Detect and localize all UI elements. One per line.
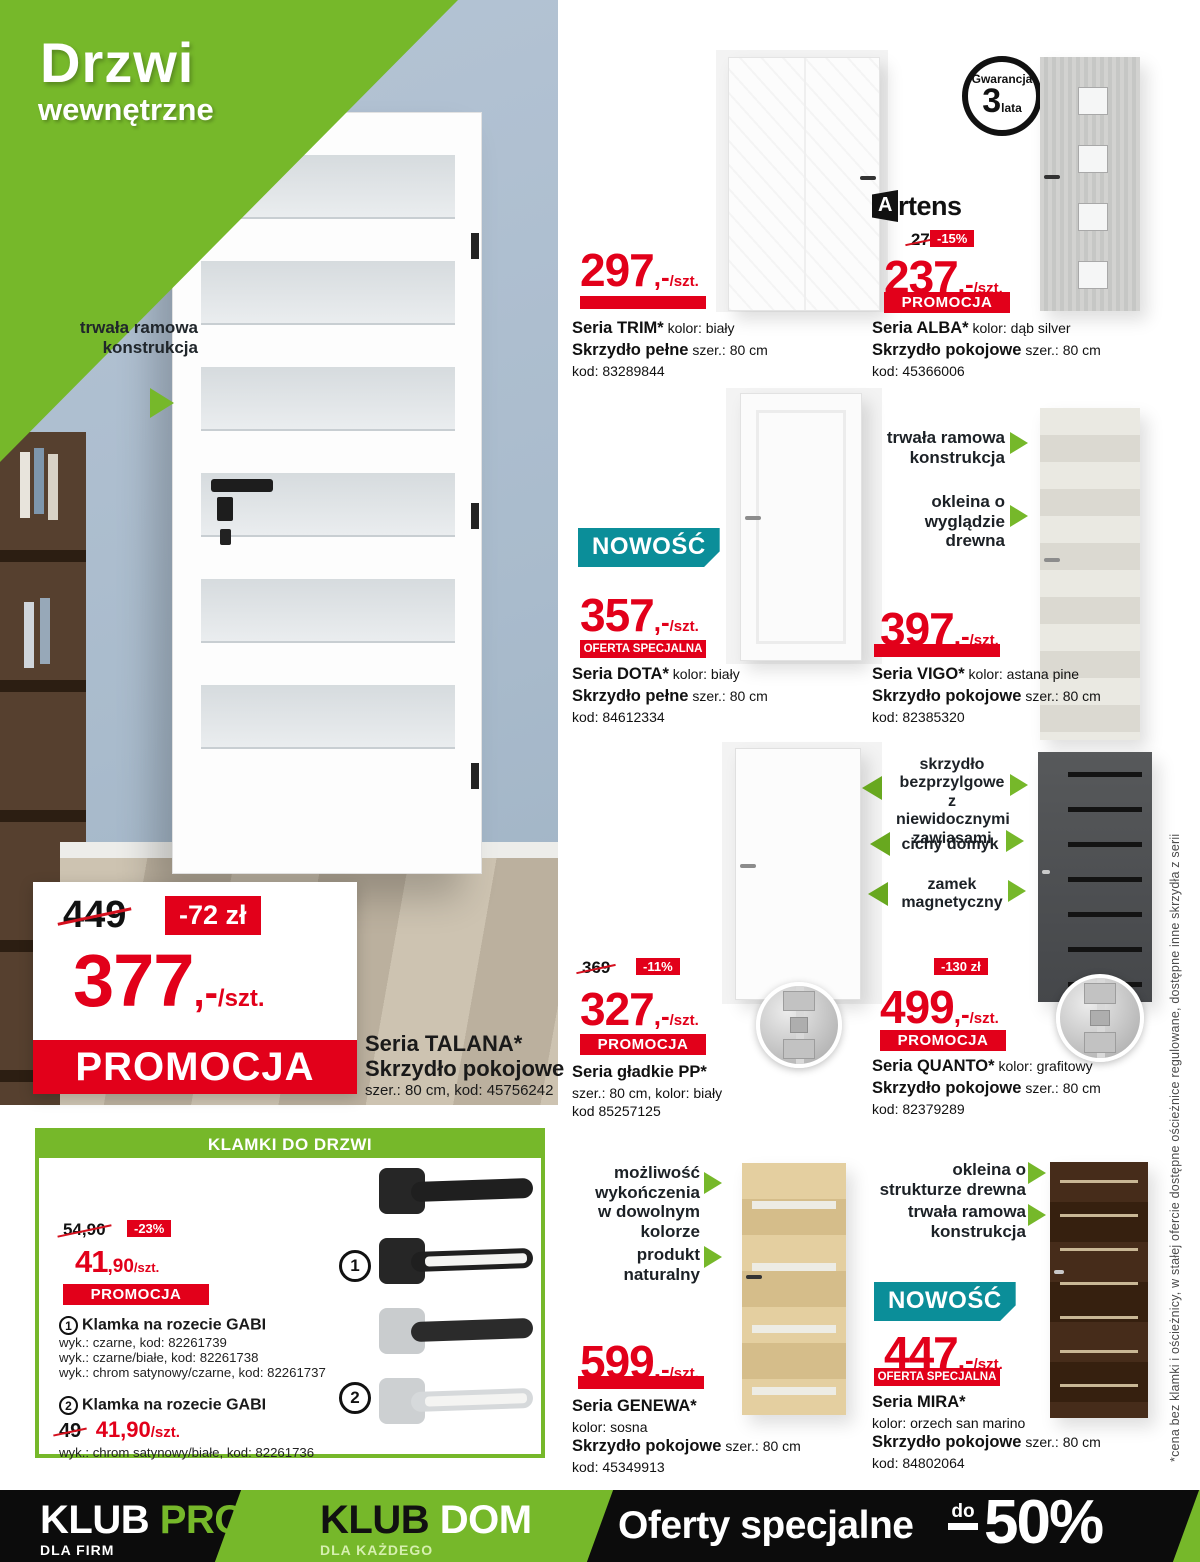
handle-inlay: [425, 1393, 527, 1407]
page-subtitle: wewnętrzne: [38, 92, 214, 128]
hinge-detail-inset: [1056, 974, 1144, 1062]
hinge-icon: [471, 763, 479, 789]
artens-mark-icon: A: [872, 190, 898, 222]
price-underline: [874, 644, 1000, 657]
book-spine: [34, 448, 44, 514]
book-spine: [20, 452, 30, 518]
product-info-dota: Seria DOTA* kolor: biały Skrzydło pełne …: [572, 664, 768, 726]
klub-dom-logo: KLUB DOM DLA KAŻDEGO: [320, 1500, 532, 1558]
handle-inlay: [425, 1253, 527, 1267]
hinge-knuckle: [790, 1017, 809, 1033]
promo-band: PROMOCJA: [884, 292, 1010, 313]
feature-callout: możliwość wykończenia w dowolnym kolorze: [588, 1163, 700, 1241]
door-handle-icon: [746, 1275, 762, 1279]
old-price: 369: [582, 958, 610, 978]
old-price: 449: [63, 894, 126, 937]
product-info-genewa: Seria GENEWA* kolor: sosna Skrzydło poko…: [572, 1396, 801, 1476]
door-handle-icon: [740, 864, 756, 868]
promo-band: PROMOCJA: [580, 1034, 706, 1055]
hinge-icon: [471, 503, 479, 529]
new-badge: NOWOŚĆ: [874, 1282, 1016, 1321]
talana-promo-box: 449 -72 zł 377,-/szt. PROMOCJA: [33, 882, 357, 1094]
up-to-label: do: [948, 1502, 978, 1530]
special-offers-text: Oferty specjalne: [618, 1504, 913, 1548]
arrow-right-icon: [1010, 505, 1028, 527]
price-underline: [578, 1376, 704, 1389]
footer-bar: KLUB PRO DLA FIRM KLUB DOM DLA KAŻDEGO O…: [0, 1490, 1200, 1562]
glass-strip: [752, 1325, 836, 1333]
product-info-trim: Seria TRIM* kolor: biały Skrzydło pełne …: [572, 318, 768, 380]
product-info-pp: Seria gładkie PP* szer.: 80 cm, kolor: b…: [572, 1062, 722, 1121]
footer-green-edge: [1173, 1490, 1200, 1562]
old-price: 49: [59, 1420, 81, 1443]
minus-icon: [948, 1523, 978, 1530]
hinge-plate: [1084, 1032, 1116, 1053]
door-window: [1078, 87, 1108, 115]
new-badge: NOWOŚĆ: [578, 528, 720, 567]
arrow-right-icon: [1006, 830, 1024, 852]
door-slats: [1068, 772, 1142, 987]
feature-callout: cichy domyk: [896, 836, 1004, 854]
door-handle-rosette: [217, 497, 233, 521]
door-handle-icon: [745, 516, 761, 520]
price-trim: 297,-/szt.: [580, 243, 699, 297]
callout-number-2: 2: [339, 1382, 371, 1414]
promo-band: PROMOCJA: [63, 1284, 209, 1305]
arrow-right-icon: [704, 1172, 722, 1194]
door-image-dota: [740, 393, 862, 661]
door-handle-icon: [1054, 1270, 1064, 1274]
book-spine: [24, 602, 34, 668]
arrow-right-icon: [1010, 774, 1028, 796]
book-spine: [40, 598, 50, 664]
glass-panel: [201, 367, 455, 431]
handle-item-2: 2Klamka na rozecie GABI 49 41,90/szt. wy…: [59, 1396, 314, 1460]
price-underline: [580, 296, 706, 309]
feature-callout: produkt naturalny: [588, 1245, 700, 1284]
door-handle-icon: [860, 176, 876, 180]
product-info-talana: Seria TALANA* Skrzydło pokojowe szer.: 8…: [365, 1032, 564, 1100]
door-image-quanto: [1038, 752, 1152, 1002]
hinge-icon: [471, 233, 479, 259]
door-image-genewa: [742, 1163, 846, 1415]
price-footnote: *cena bez klamki i ościeżnicy, w stałej …: [1168, 748, 1182, 1462]
door-handle-icon: [1042, 870, 1050, 874]
door-handle-icon: [1044, 558, 1060, 562]
arrow-left-icon: [870, 832, 890, 856]
arrow-right-icon: [704, 1246, 722, 1268]
door-panel: [756, 410, 846, 644]
door-window: [1078, 145, 1108, 173]
door-window: [1078, 203, 1108, 231]
glass-panel: [201, 261, 455, 325]
handle-lever: [411, 1248, 534, 1272]
handle-item-1: 1Klamka na rozecie GABI wyk.: czarne, ko…: [59, 1316, 326, 1380]
product-info-mira: Seria MIRA* kolor: orzech san marino Skr…: [872, 1392, 1101, 1472]
door-image-mira: [1050, 1162, 1148, 1418]
discount-badge: -11%: [636, 958, 680, 975]
hinge-detail-inset: [756, 982, 842, 1068]
door-window: [1078, 261, 1108, 289]
hinge-plate: [783, 1039, 814, 1059]
old-price: 54,90: [63, 1220, 106, 1240]
discount-badge: -23%: [127, 1220, 171, 1237]
arrow-left-icon: [862, 776, 882, 800]
product-info-vigo: Seria VIGO* kolor: astana pine Skrzydło …: [872, 664, 1101, 726]
brand-logo-artens: A rtens: [872, 190, 962, 222]
promo-band: PROMOCJA: [880, 1030, 1006, 1051]
discount-badge: -130 zł: [934, 958, 988, 975]
door-handles-box: KLAMKI DO DRZWI 54,90 -23% 41,90/szt. PR…: [35, 1128, 545, 1458]
glass-panel: [201, 579, 455, 643]
glass-strip: [752, 1263, 836, 1271]
item-number-icon: 2: [59, 1396, 78, 1415]
product-info-alba: Seria ALBA* kolor: dąb silver Skrzydło p…: [872, 318, 1101, 380]
feature-callout: trwała ramowa konstrukcja: [878, 1202, 1026, 1241]
feature-callout: okleina o strukturze drewna: [878, 1160, 1026, 1199]
catalog-page: Drzwi wewnętrzne trwała ramowa konstrukc…: [0, 0, 1200, 1562]
door-keyplate: [220, 529, 231, 545]
price-dota: 357,-/szt.: [580, 588, 699, 642]
handle-lever: [411, 1318, 534, 1342]
glass-strip: [752, 1387, 836, 1395]
special-offer-band: OFERTA SPECJALNA: [580, 640, 706, 658]
price-quanto: 499,-/szt.: [880, 980, 999, 1034]
hinge-plate: [783, 991, 814, 1011]
glass-strip: [752, 1201, 836, 1209]
door-handle-icon: [211, 479, 273, 492]
price-talana: 377,-/szt.: [73, 938, 265, 1023]
door-seam: [804, 58, 806, 310]
price-handle-2: 41,90: [96, 1417, 151, 1442]
door-image-trim: [728, 57, 880, 311]
hinge-plate: [1084, 983, 1116, 1004]
price-pp: 327,-/szt.: [580, 982, 699, 1036]
hinge-knuckle: [1090, 1010, 1109, 1026]
feature-callout: okleina o wyglądzie drewna: [880, 492, 1005, 551]
special-offer-band: OFERTA SPECJALNA: [874, 1368, 1000, 1386]
handle-lever: [411, 1388, 534, 1412]
arrow-right-icon: [1028, 1162, 1046, 1184]
product-info-quanto: Seria QUANTO* kolor: grafitowy Skrzydło …: [872, 1056, 1101, 1118]
callout-number-1: 1: [339, 1250, 371, 1282]
guarantee-badge: Gwarancja 3lata: [962, 56, 1042, 136]
discount-badge: -15%: [930, 230, 974, 247]
door-image-alba: [1040, 57, 1140, 311]
handle-lever: [411, 1178, 534, 1202]
feature-callout: zamek magnetyczny: [896, 876, 1008, 913]
handles-section-title: KLAMKI DO DRZWI: [39, 1132, 541, 1158]
book-spine: [48, 454, 58, 520]
item-number-icon: 1: [59, 1316, 78, 1335]
door-image-pp: [735, 748, 861, 1000]
arrow-right-icon: [1008, 880, 1026, 902]
hero-feature-callout: trwała ramowa konstrukcja: [60, 318, 198, 358]
page-title: Drzwi: [40, 30, 194, 95]
arrow-left-icon: [868, 882, 888, 906]
discount-badge: -72 zł: [165, 896, 261, 935]
klub-pro-logo: KLUB PRO DLA FIRM: [40, 1500, 245, 1558]
arrow-right-icon: [150, 388, 174, 418]
arrow-right-icon: [1028, 1204, 1046, 1226]
promo-band: PROMOCJA: [33, 1040, 357, 1094]
price-handles: 41,90/szt.: [75, 1244, 159, 1280]
glass-panel: [201, 685, 455, 749]
feature-callout: skrzydło bezprzylgowe z niewidocznymi za…: [896, 756, 1008, 848]
feature-callout: trwała ramowa konstrukcja: [880, 428, 1005, 467]
door-handle-icon: [1044, 175, 1060, 179]
arrow-right-icon: [1010, 432, 1028, 454]
door-stripes: [1060, 1180, 1138, 1400]
discount-percent: 50%: [984, 1494, 1102, 1553]
